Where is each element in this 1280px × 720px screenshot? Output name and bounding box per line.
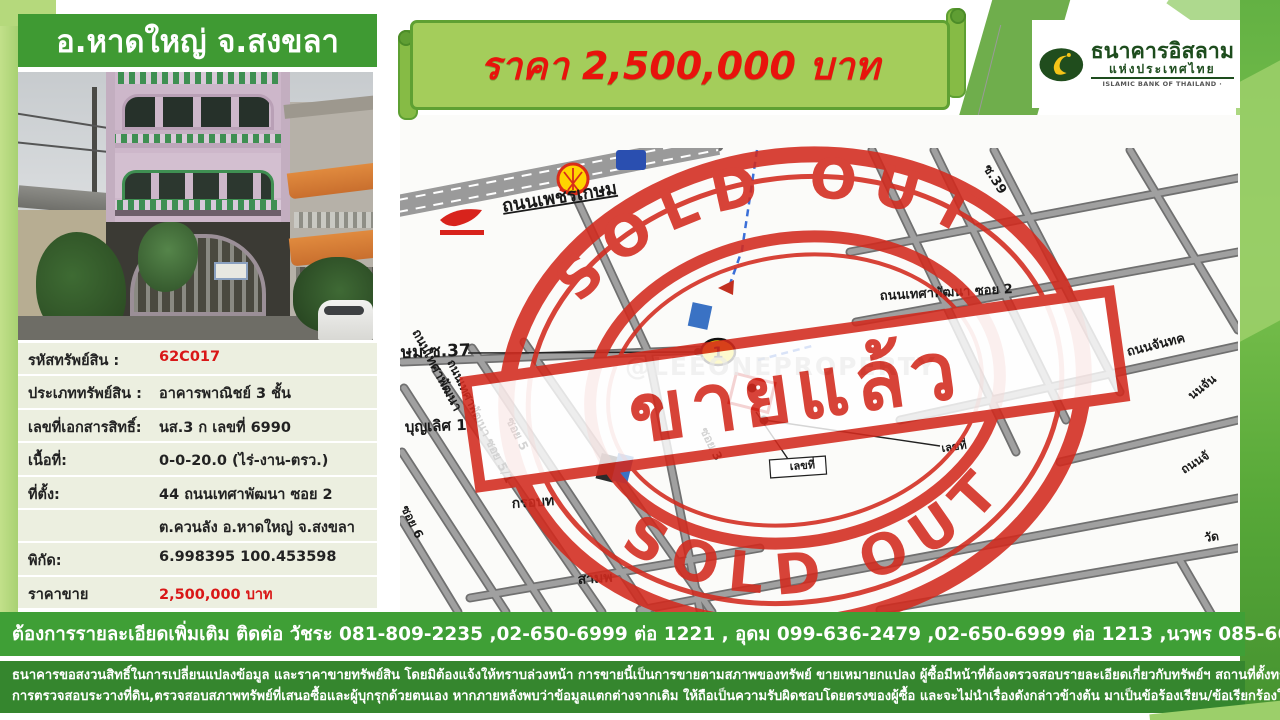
table-row: พิกัด: 6.998395 100.453598 xyxy=(18,543,377,576)
photo-upper-windows xyxy=(122,94,274,130)
land-area: 0-0-20.0 (ไร่-งาน-ตรว.) xyxy=(155,443,377,474)
bank-name-en: ISLAMIC BANK OF THAILAND · xyxy=(1091,81,1234,88)
row-label: ราคาขาย xyxy=(18,577,155,608)
bank-name-th: ธนาคารอิสลาม xyxy=(1091,41,1234,64)
property-photo xyxy=(18,72,373,340)
property-code: 62C017 xyxy=(155,343,377,374)
property-type: อาคารพาณิชย์ 3 ชั้น xyxy=(155,376,377,407)
row-label: เลขที่เอกสารสิทธิ์: xyxy=(18,410,155,441)
property-details-table: รหัสทรัพย์สิน : 62C017 ประเภททรัพย์สิน :… xyxy=(18,343,377,610)
right-green-strip-highlight xyxy=(1236,56,1280,344)
address-line1: 44 ถนนเทศาพัฒนา ซอย 2 xyxy=(155,477,377,508)
coordinates: 6.998395 100.453598 xyxy=(155,543,377,574)
row-label xyxy=(18,510,155,541)
price-banner: ราคา 2,500,000 บาท xyxy=(396,6,968,122)
photo-balcony-1 xyxy=(110,130,286,148)
table-row: เลขที่เอกสารสิทธิ์: นส.3 ก เลขที่ 6990 xyxy=(18,410,377,443)
price-banner-body: ราคา 2,500,000 บาท xyxy=(410,20,950,110)
stamp-arc-bottom-text: SOLD OUT xyxy=(604,444,1033,612)
address-line2: ต.ควนลัง อ.หาดใหญ่ จ.สงขลา xyxy=(155,510,377,541)
table-row: ราคาขาย 2,500,000 บาท xyxy=(18,577,377,610)
stamp-arc-top-text: SOLD OUT xyxy=(530,140,1006,320)
disclaimer-bar: ธนาคารขอสงวนสิทธิ์ในการเปลี่ยนแปลงข้อมูล… xyxy=(0,661,1245,713)
table-row: รหัสทรัพย์สิน : 62C017 xyxy=(18,343,377,376)
left-green-strip xyxy=(0,0,18,612)
bank-emblem-icon xyxy=(1038,39,1085,89)
row-label: รหัสทรัพย์สิน : xyxy=(18,343,155,374)
bank-name-th2: แห่งประเทศไทย xyxy=(1091,63,1234,79)
row-label: พิกัด: xyxy=(18,543,155,574)
photo-balcony-2 xyxy=(106,200,290,216)
photo-gate-sign xyxy=(214,262,248,280)
bank-name-block: ธนาคารอิสลาม แห่งประเทศไทย ISLAMIC BANK … xyxy=(1091,41,1234,88)
sale-price: 2,500,000 บาท xyxy=(155,577,377,608)
disclaimer-line2: การตรวจสอบระวางที่ดิน,ตรวจสอบสภาพทรัพย์ท… xyxy=(12,687,1233,708)
table-row: เนื้อที่: 0-0-20.0 (ไร่-งาน-ตรว.) xyxy=(18,443,377,476)
location-header: อ.หาดใหญ่ จ.สงขลา xyxy=(18,14,377,67)
disclaimer-line1: ธนาคารขอสงวนสิทธิ์ในการเปลี่ยนแปลงข้อมูล… xyxy=(12,666,1233,687)
stamp-banner: ขายแล้ว xyxy=(466,291,1124,486)
row-label: เนื้อที่: xyxy=(18,443,155,474)
bank-logo: ธนาคารอิสลาม แห่งประเทศไทย ISLAMIC BANK … xyxy=(1032,20,1240,108)
flyer-slide: อ.หาดใหญ่ จ.สงขลา xyxy=(0,0,1280,720)
contact-bar: ต้องการรายละเอียดเพิ่มเติม ติดต่อ วัชระ … xyxy=(0,612,1245,656)
deed-number: นส.3 ก เลขที่ 6990 xyxy=(155,410,377,441)
scroll-curl-right xyxy=(950,8,966,24)
row-label: ประเภททรัพย์สิน : xyxy=(18,376,155,407)
location-title: อ.หาดใหญ่ จ.สงขลา xyxy=(56,16,339,66)
contact-text: ต้องการรายละเอียดเพิ่มเติม ติดต่อ วัชระ … xyxy=(12,620,1280,649)
photo-right-balcony xyxy=(294,212,373,228)
table-row: ประเภททรัพย์สิน : อาคารพาณิชย์ 3 ชั้น xyxy=(18,376,377,409)
sold-out-stamp: SOLD OUT SOLD OUT ขายแล้ว xyxy=(400,140,1240,612)
table-row: ต.ควนลัง อ.หาดใหญ่ จ.สงขลา xyxy=(18,510,377,543)
price-text: ราคา 2,500,000 บาท xyxy=(480,35,879,96)
table-row: ที่ตั้ง: 44 ถนนเทศาพัฒนา ซอย 2 xyxy=(18,477,377,510)
photo-mid-windows xyxy=(122,170,274,202)
stamp-group: SOLD OUT SOLD OUT ขายแล้ว xyxy=(435,140,1153,612)
photo-top-balustrade xyxy=(118,72,278,84)
photo-car-window xyxy=(324,306,364,315)
row-label: ที่ตั้ง: xyxy=(18,477,155,508)
